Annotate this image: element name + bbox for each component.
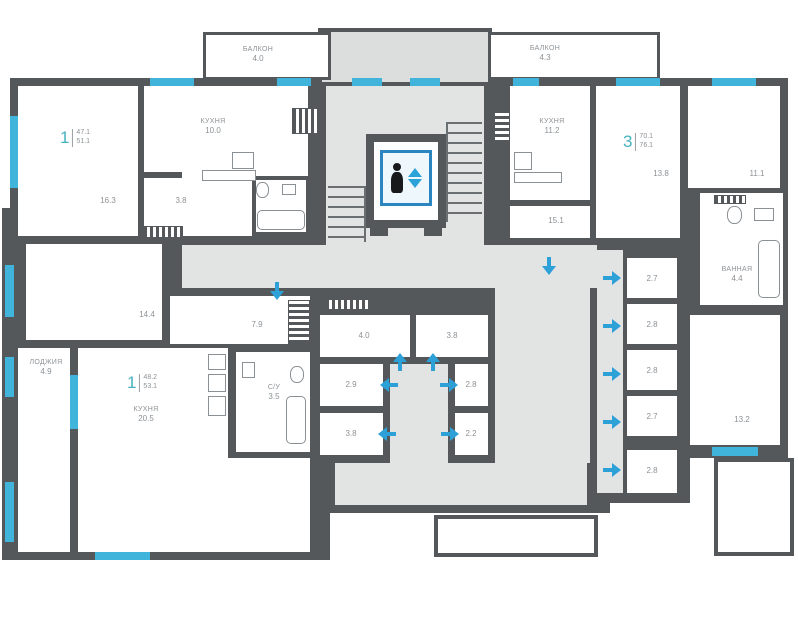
stairs-left-rail xyxy=(364,186,366,242)
kitchen-counter xyxy=(514,172,562,183)
balcony-left-label: БАЛКОН4.0 xyxy=(243,44,273,64)
room-area-label: 14.4 xyxy=(139,310,155,320)
elevator-down-arrow-icon xyxy=(408,179,422,188)
stairs-right-rail xyxy=(446,122,448,222)
hall-area-label: 7.9 xyxy=(251,320,262,330)
toilet-icon xyxy=(727,206,742,224)
bathroom-label-tr: ВАННАЯ4.4 xyxy=(722,264,753,284)
vent-grille xyxy=(714,195,746,204)
wall-stub-tl xyxy=(138,172,182,178)
entrance-porch-right xyxy=(714,458,794,556)
entrance-porch-bottom xyxy=(434,515,598,557)
entry-arrow-storage-r1 xyxy=(603,271,621,285)
storage-area-label: 2.7 xyxy=(646,274,657,284)
storage-area-label: 2.9 xyxy=(345,380,356,390)
entry-arrow-storage-b xyxy=(426,353,440,371)
apartment-tag-tr: 3 70.176.1 xyxy=(623,132,653,152)
stove-icon xyxy=(514,152,532,170)
balcony-right xyxy=(488,32,660,80)
kitchen-appliance xyxy=(208,354,226,370)
stairs-right xyxy=(448,122,482,222)
window-marker xyxy=(95,552,150,560)
entry-arrow-storage-e xyxy=(378,427,396,441)
kitchen-appliance xyxy=(208,396,226,416)
kitchen-label-bl: КУХНЯ20.5 xyxy=(134,404,159,424)
radiator-grille xyxy=(143,226,183,238)
storage-area-label: 2.2 xyxy=(465,429,476,439)
corridor-vertical xyxy=(495,288,590,463)
radiator-grille xyxy=(325,299,371,310)
window-marker xyxy=(712,447,758,456)
storage-area-label: 2.8 xyxy=(646,320,657,330)
window-marker xyxy=(513,78,539,86)
loggia-bl xyxy=(18,348,70,552)
stair-landing-upper xyxy=(318,28,492,86)
room-living-tl xyxy=(18,86,138,236)
window-marker xyxy=(70,375,78,429)
kitchen-counter xyxy=(202,170,256,181)
storage-area-label: 2.7 xyxy=(646,412,657,422)
window-marker xyxy=(150,78,194,86)
room-1-tr xyxy=(596,86,680,238)
storage-area-label: 2.8 xyxy=(465,380,476,390)
bathtub-icon xyxy=(257,210,305,230)
room-area-label: 13.2 xyxy=(734,415,750,425)
kitchen-label-tr: КУХНЯ11.2 xyxy=(540,116,565,136)
bathtub-icon xyxy=(758,240,780,298)
storage-area-label: 2.8 xyxy=(646,366,657,376)
elevator-up-arrow-icon xyxy=(408,168,422,177)
sink-icon xyxy=(754,208,774,221)
toilet-icon xyxy=(256,182,269,198)
bathtub-icon xyxy=(286,396,306,444)
elevator-arrows xyxy=(408,168,422,188)
kitchen-label-tl: КУХНЯ10.0 xyxy=(201,116,226,136)
window-marker xyxy=(5,482,14,542)
vent-grille xyxy=(494,112,510,144)
room-kitchen-bl-ext xyxy=(228,458,310,552)
window-marker xyxy=(410,78,440,86)
entry-arrow-corridor xyxy=(542,257,556,275)
vent-grille xyxy=(292,108,318,134)
entry-arrow-storage-a xyxy=(393,353,407,371)
window-marker xyxy=(277,78,311,86)
sink-icon xyxy=(242,362,255,378)
storage-area-label: 4.0 xyxy=(358,331,369,341)
storage-area-label: 3.8 xyxy=(345,429,356,439)
shaft-leg-right xyxy=(424,228,442,236)
window-marker xyxy=(352,78,382,86)
storage-area-label: 2.8 xyxy=(646,466,657,476)
corridor-bottom xyxy=(335,463,587,505)
entry-arrow-storage-f xyxy=(441,427,459,441)
window-marker xyxy=(5,265,14,317)
window-marker xyxy=(10,116,18,188)
room-3-tr xyxy=(690,315,780,445)
entry-arrow-storage-r3 xyxy=(603,367,621,381)
apartment-tag-bl: 1 48.253.1 xyxy=(127,373,157,393)
apartment-tag-tl: 1 47.151.1 xyxy=(60,128,90,148)
entry-arrow-storage-r4 xyxy=(603,415,621,429)
storage-area-label: 3.8 xyxy=(446,331,457,341)
stairs-left xyxy=(328,186,364,242)
entry-arrow-storage-d xyxy=(440,378,458,392)
shaft-leg-left xyxy=(370,228,388,236)
elevator-person-icon xyxy=(390,163,404,193)
elevator-car xyxy=(380,150,432,206)
toilet-icon xyxy=(290,366,304,383)
wc-label-bl: С/У3.5 xyxy=(268,382,280,402)
balcony-right-label: БАЛКОН4.3 xyxy=(530,43,560,63)
window-marker xyxy=(616,78,660,86)
loggia-label-bl: ЛОДЖИЯ4.9 xyxy=(30,357,63,377)
sink-icon xyxy=(282,184,296,195)
room-area-label: 16.3 xyxy=(100,196,116,206)
window-marker xyxy=(5,357,14,397)
room-2-tr xyxy=(688,86,780,188)
room-area-label: 13.8 xyxy=(653,169,669,179)
room-living-bl xyxy=(26,244,162,340)
kitchen-appliance xyxy=(208,374,226,392)
entry-arrow-storage-r5 xyxy=(603,463,621,477)
entry-arrow-storage-r2 xyxy=(603,319,621,333)
hall-area-label: 3.8 xyxy=(175,196,186,206)
corridor-main xyxy=(182,245,597,288)
shaft-hatch xyxy=(288,300,310,344)
entry-arrow-storage-c xyxy=(380,378,398,392)
stove-icon xyxy=(232,152,254,169)
hall-area-label: 15.1 xyxy=(548,216,564,226)
entry-arrow-apartment-bl xyxy=(270,282,284,300)
window-marker xyxy=(712,78,756,86)
room-area-label: 11.1 xyxy=(750,169,765,179)
floor-plan: БАЛКОН4.0 БАЛКОН4.3 1 47.151.1 КУХНЯ10.0… xyxy=(0,0,798,628)
